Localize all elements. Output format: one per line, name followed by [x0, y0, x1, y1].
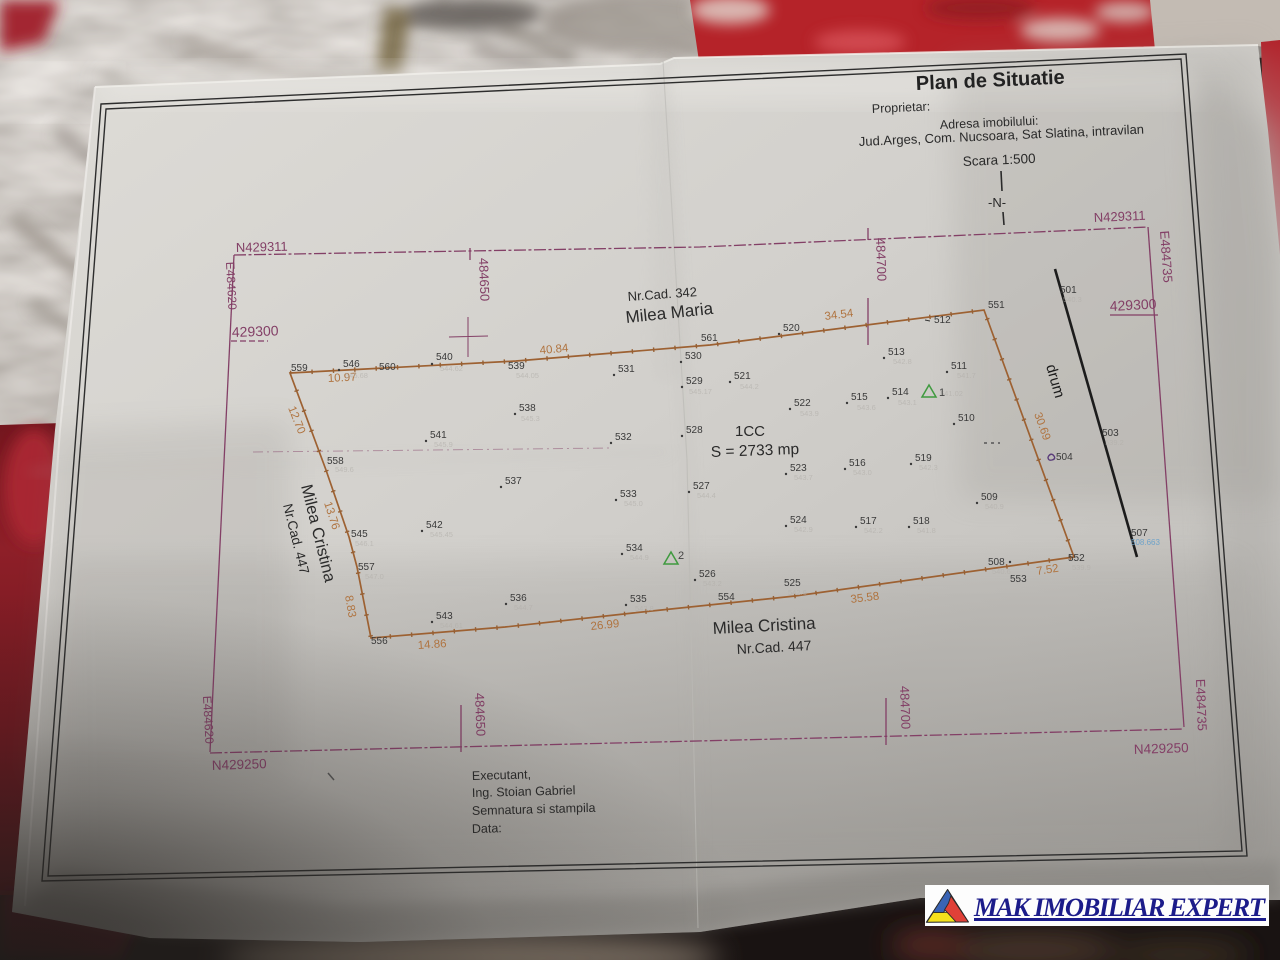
svg-text:560: 560: [379, 362, 396, 373]
svg-text:530: 530: [685, 351, 702, 362]
svg-text:553: 553: [1010, 574, 1027, 585]
svg-text:N429250: N429250: [1134, 740, 1189, 757]
svg-text:545.3: 545.3: [521, 414, 540, 423]
svg-text:484700: 484700: [873, 238, 890, 282]
svg-text:542.3: 542.3: [919, 463, 938, 472]
svg-text:543.6: 543.6: [857, 403, 876, 412]
svg-text:1: 1: [939, 387, 945, 399]
svg-text:520: 520: [783, 323, 800, 334]
svg-text:541.8: 541.8: [917, 526, 936, 535]
svg-text:537: 537: [505, 476, 522, 487]
svg-text:Proprietar:: Proprietar:: [872, 99, 931, 116]
svg-text:484700: 484700: [897, 686, 914, 730]
svg-text:521: 521: [734, 371, 751, 382]
svg-text:512: 512: [934, 315, 951, 326]
svg-text:508.663: 508.663: [1131, 538, 1160, 547]
svg-text:542.8: 542.8: [893, 357, 912, 366]
svg-text:540.9: 540.9: [985, 502, 1004, 511]
svg-text:540.6: 540.6: [992, 567, 1011, 576]
svg-text:522: 522: [794, 398, 811, 409]
svg-text:541.7: 541.7: [957, 371, 976, 380]
svg-text:515: 515: [851, 392, 868, 403]
svg-text:544.4: 544.4: [697, 491, 716, 500]
svg-text:545.17: 545.17: [689, 387, 712, 396]
svg-text:429300: 429300: [232, 322, 279, 340]
svg-text:N429311: N429311: [1093, 208, 1145, 225]
svg-text:MAK IMOBILIAR EXPERT: MAK IMOBILIAR EXPERT: [973, 892, 1267, 922]
svg-text:543.0: 543.0: [853, 468, 872, 477]
svg-text:559: 559: [291, 363, 308, 374]
svg-text:545.68: 545.68: [345, 371, 368, 380]
svg-text:529: 529: [686, 376, 703, 387]
svg-text:543.9: 543.9: [800, 409, 819, 418]
svg-text:545.9: 545.9: [434, 440, 453, 449]
svg-text:538: 538: [519, 403, 536, 414]
svg-text:40.84: 40.84: [539, 342, 569, 357]
svg-text:543.1: 543.1: [898, 398, 917, 407]
svg-text:-N-: -N-: [988, 195, 1006, 210]
svg-text:N429311: N429311: [236, 239, 288, 255]
svg-text:1CC: 1CC: [735, 423, 765, 440]
svg-text:549.6: 549.6: [335, 465, 354, 474]
svg-text:544.2: 544.2: [740, 382, 759, 391]
svg-text:514: 514: [892, 387, 909, 398]
svg-text:510: 510: [958, 413, 975, 424]
svg-text:Scara 1:500: Scara 1:500: [962, 151, 1035, 169]
svg-text:561: 561: [701, 333, 718, 344]
svg-text:544.62: 544.62: [440, 364, 463, 373]
svg-text:539.9: 539.9: [1072, 563, 1091, 572]
svg-text:532: 532: [615, 432, 632, 443]
svg-text:551: 551: [988, 300, 1005, 311]
svg-text:S = 2733 mp: S = 2733 mp: [711, 441, 800, 461]
svg-text:E484735: E484735: [1193, 679, 1210, 732]
svg-text:539.2: 539.2: [1105, 438, 1124, 447]
svg-text:544.05: 544.05: [516, 371, 539, 380]
svg-text:540.3: 540.3: [1063, 295, 1082, 304]
svg-text:528: 528: [686, 425, 703, 436]
svg-text:540: 540: [436, 352, 453, 363]
svg-text:543.7: 543.7: [794, 473, 813, 482]
svg-text:484650: 484650: [476, 258, 493, 302]
svg-text:546: 546: [343, 359, 360, 370]
svg-text:531: 531: [618, 364, 635, 375]
svg-text:429300: 429300: [1109, 296, 1157, 314]
svg-text:504: 504: [1056, 452, 1073, 463]
svg-text:E484620: E484620: [223, 261, 240, 310]
